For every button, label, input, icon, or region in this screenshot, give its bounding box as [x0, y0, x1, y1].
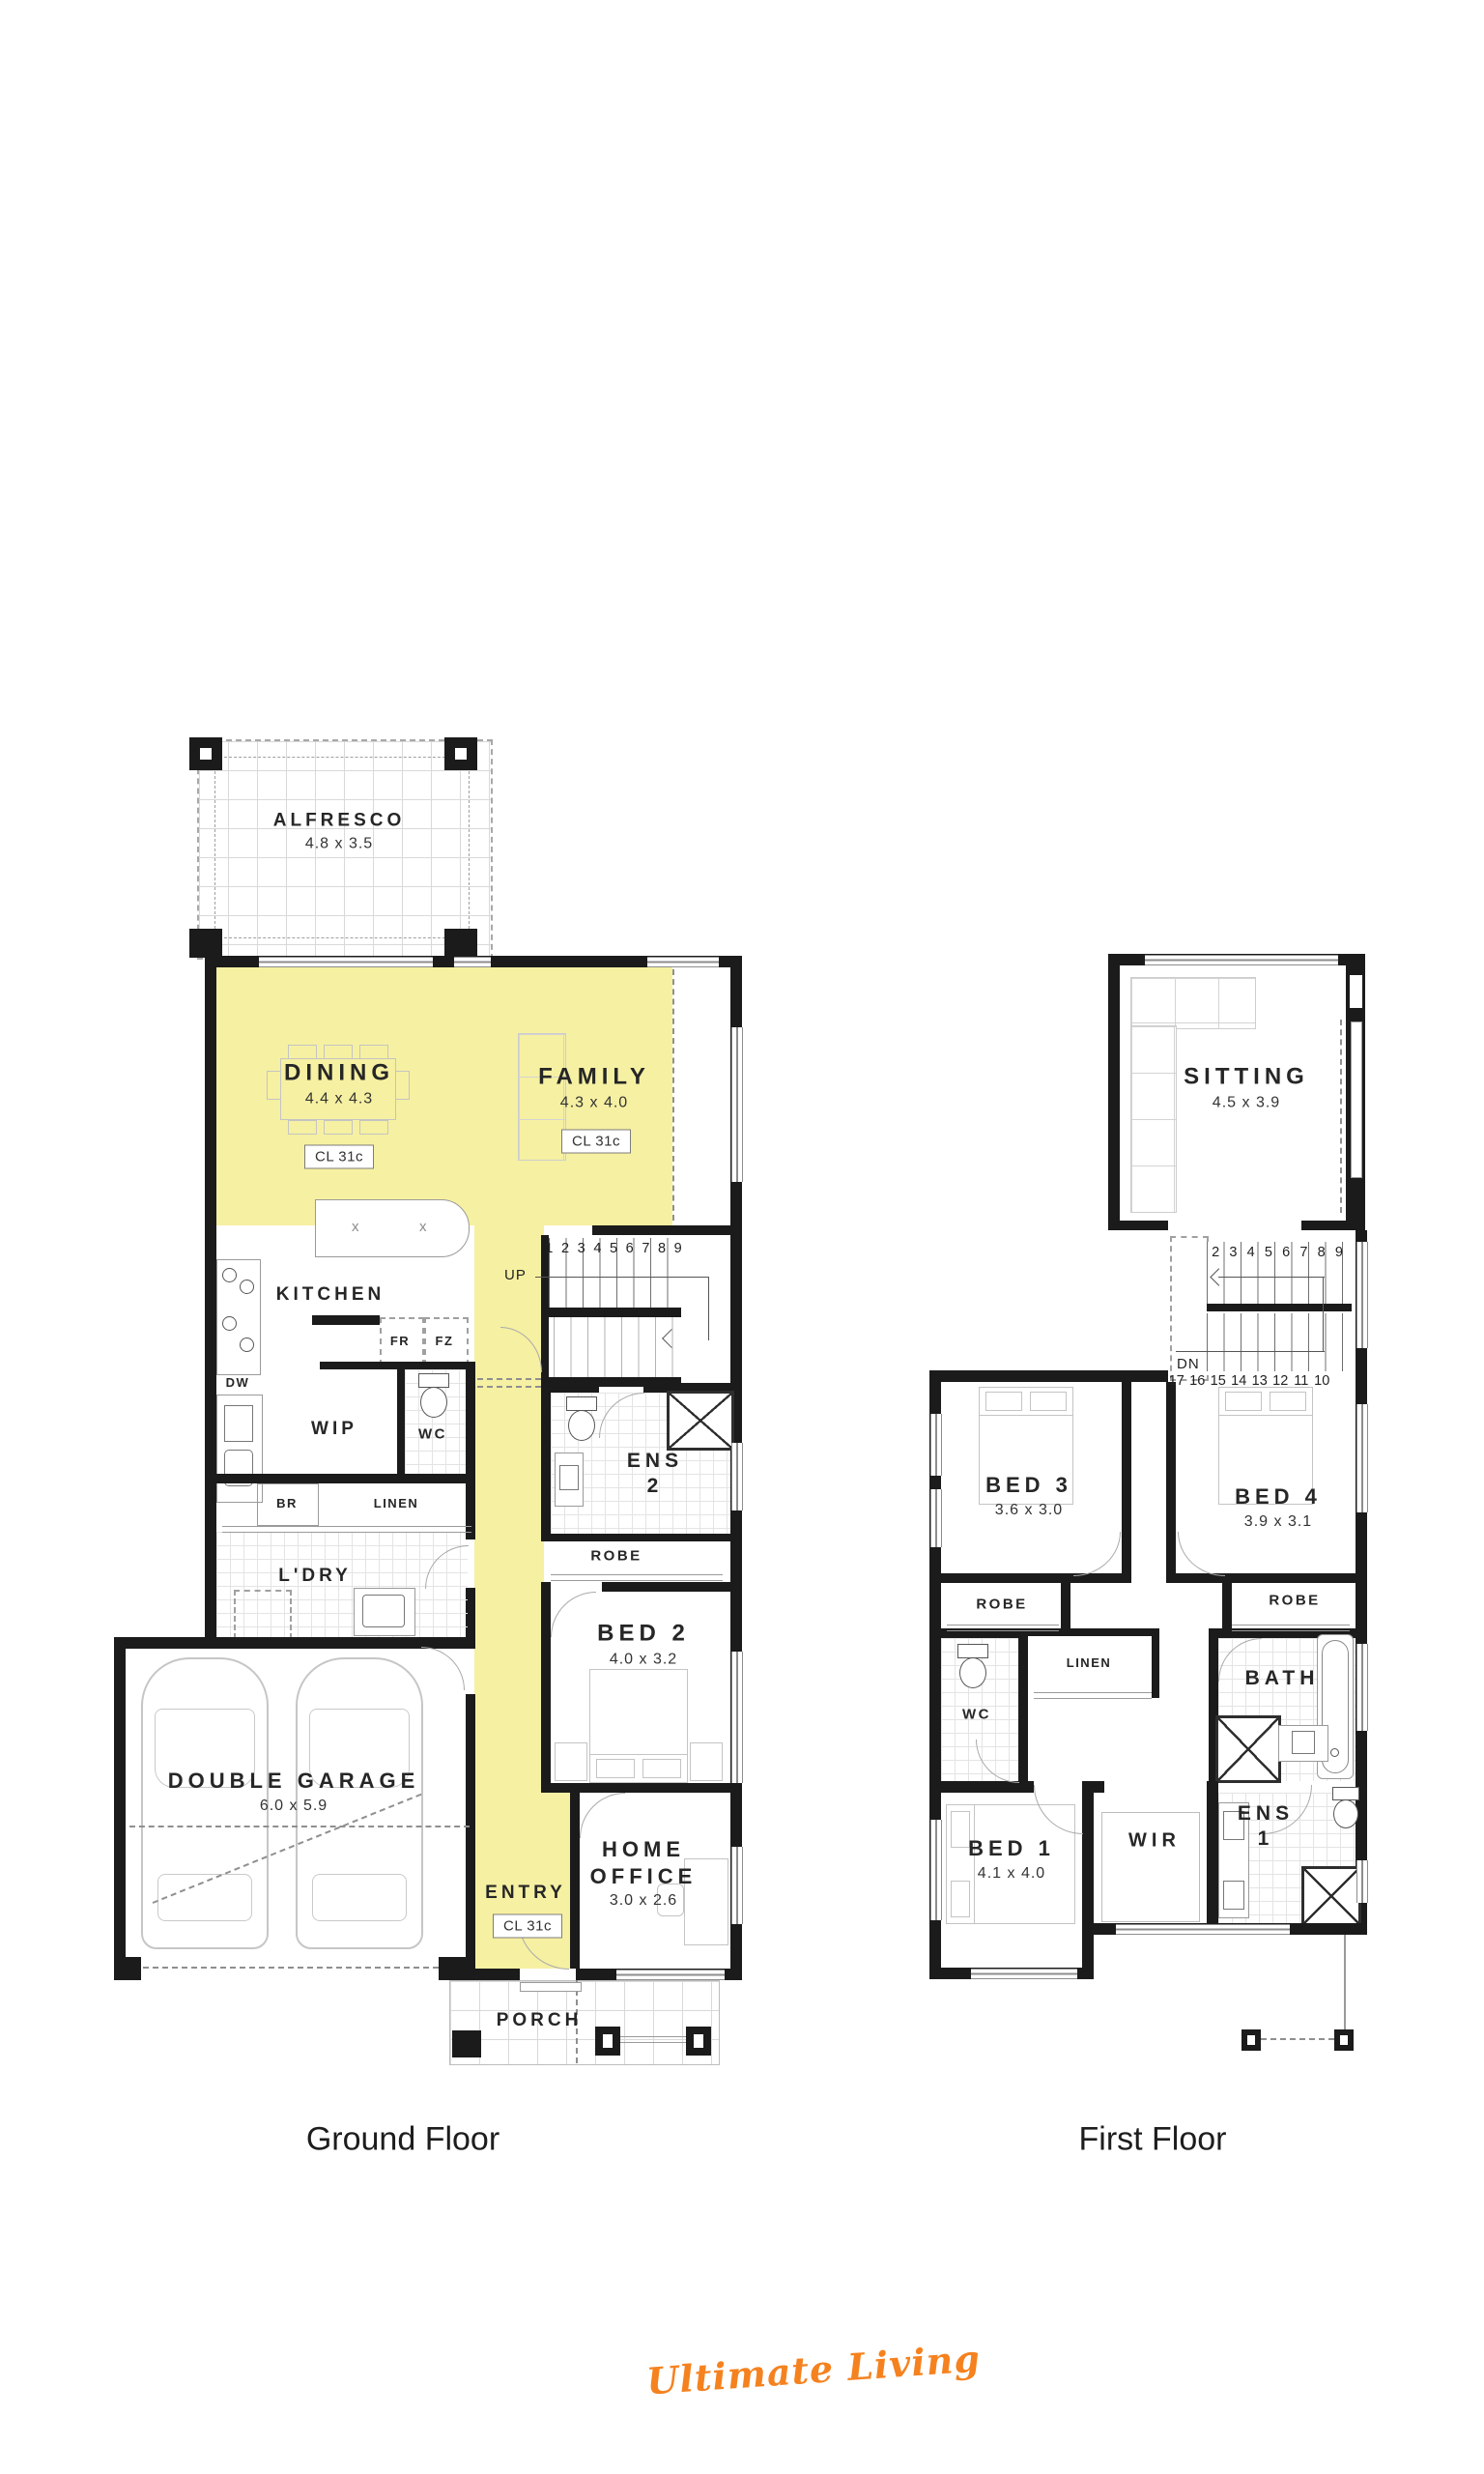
wall-segment	[312, 1315, 380, 1325]
island-sink-mark: x	[419, 1219, 427, 1235]
wall-segment	[1166, 1382, 1176, 1575]
wall-segment	[541, 1308, 681, 1317]
toilet	[957, 1644, 988, 1658]
door-arc	[551, 1592, 596, 1637]
room-label-family: FAMILY 4.3 x 4.0	[538, 1063, 650, 1112]
blanket-line	[1219, 1415, 1312, 1416]
door-arc	[421, 1647, 465, 1690]
room-label-ens1: ENS 1	[1238, 1801, 1294, 1853]
toilet-bowl	[1333, 1799, 1358, 1828]
window	[259, 957, 433, 967]
sitting-sofa	[1130, 977, 1256, 1029]
kitchen-island	[315, 1199, 470, 1257]
wall-segment	[1152, 1628, 1159, 1698]
room-label-wip: WIP	[311, 1418, 357, 1441]
room-label-wc-ff: WC	[962, 1707, 991, 1725]
dining-chair	[288, 1120, 317, 1135]
window	[971, 1969, 1077, 1979]
wall-segment	[216, 1474, 473, 1483]
duct-niche	[1350, 975, 1362, 1008]
blanket-line	[590, 1754, 687, 1755]
stair-treads-lower	[1207, 1313, 1348, 1371]
wall-segment	[320, 1362, 471, 1369]
sliding-door	[551, 1574, 723, 1581]
room-label-bed2: BED 2 4.0 x 3.2	[597, 1620, 690, 1669]
burner-icon	[240, 1280, 254, 1294]
laundry-trough	[354, 1588, 415, 1636]
pillow	[951, 1881, 970, 1917]
balcony-post	[1334, 2029, 1354, 2051]
balcony-post	[1241, 2029, 1261, 2051]
room-label-wir: WIR	[1128, 1829, 1181, 1854]
room-label-ens2: ENS 2	[627, 1449, 683, 1500]
stair-path-line	[535, 1277, 709, 1278]
balcony-dashed-line	[1261, 2038, 1334, 2040]
wall-segment	[114, 1637, 126, 1980]
robe-label: ROBE	[976, 1597, 1027, 1615]
basin	[1292, 1731, 1315, 1754]
wall-segment	[205, 1637, 475, 1649]
wall-segment	[541, 1783, 740, 1793]
wall-segment	[444, 929, 477, 958]
sliding-door	[1232, 1625, 1350, 1631]
pillow	[985, 1392, 1022, 1411]
pillow	[951, 1811, 970, 1848]
vanity	[555, 1453, 584, 1507]
island-sink-mark: x	[352, 1219, 359, 1235]
window	[731, 1027, 743, 1182]
sliding-door	[1034, 1692, 1152, 1699]
porch-area	[449, 1980, 720, 2065]
pillow	[596, 1759, 635, 1778]
room-label-dining: DINING 4.4 x 4.3	[284, 1059, 394, 1108]
window	[930, 1414, 942, 1476]
room-label-kitchen: KITCHEN	[276, 1283, 385, 1307]
sitting-sofa	[1130, 1025, 1177, 1213]
front-step	[520, 1982, 582, 1992]
wall-segment	[1207, 1781, 1218, 1923]
door-arc	[1073, 1532, 1121, 1576]
room-label-porch: PORCH	[497, 2009, 583, 2032]
stair-direction-down: DN	[1177, 1356, 1200, 1372]
garage-door-line	[143, 1967, 439, 1969]
window	[647, 957, 719, 967]
window	[1356, 1644, 1368, 1731]
wall-segment	[541, 1534, 730, 1541]
shower	[667, 1391, 734, 1451]
stair-numbers: 23456789	[1207, 1245, 1348, 1264]
wall-segment	[114, 1637, 216, 1649]
wall-segment	[541, 1582, 551, 1783]
broom-label: BR	[276, 1496, 298, 1511]
basin	[559, 1465, 579, 1490]
bedside-table	[555, 1742, 587, 1781]
first-floor-title: First Floor	[1079, 2121, 1227, 2159]
fridge-label: FR	[390, 1334, 410, 1349]
window	[731, 1443, 743, 1510]
ground-floor-plan: ALFRESCO 4.8 x 3.5 DINING 4.4 x 4.3	[114, 737, 790, 2090]
dining-chair	[324, 1045, 353, 1059]
kitchen-sink	[216, 1395, 263, 1503]
brand-logo: Ultimate Living	[645, 2336, 983, 2402]
dining-chair	[359, 1120, 388, 1135]
ceiling-badge-entry: CL 31c	[493, 1914, 562, 1939]
window	[1356, 1860, 1368, 1903]
shower	[1215, 1715, 1281, 1783]
stair-path-line	[708, 1277, 711, 1340]
dining-chair	[359, 1045, 388, 1059]
trough-bowl	[362, 1595, 405, 1627]
stair-path-line	[1323, 1277, 1326, 1352]
linen-label-ff: LINEN	[1067, 1655, 1112, 1671]
window	[1356, 1404, 1368, 1512]
dishwasher-label: DW	[226, 1375, 250, 1391]
ground-floor-title: Ground Floor	[306, 2121, 499, 2159]
toilet	[1332, 1787, 1359, 1800]
wall-segment	[1108, 954, 1120, 1230]
robe-label: ROBE	[590, 1548, 642, 1567]
bulkhead-dashed-line	[672, 969, 674, 1221]
room-label-bed1: BED 1 4.1 x 4.0	[968, 1835, 1055, 1883]
wall-segment	[1122, 1382, 1131, 1575]
room-label-wc: WC	[418, 1426, 447, 1445]
window	[616, 1970, 725, 1980]
wall-segment	[1222, 1583, 1232, 1628]
first-floor-plan: SITTING 4.5 x 3.9 23456789 DN 1716151413…	[923, 952, 1425, 2092]
wall-segment	[1061, 1583, 1070, 1628]
burner-icon	[240, 1338, 254, 1352]
sliding-door	[222, 1526, 471, 1533]
stair-treads-lower	[554, 1317, 679, 1377]
wall-segment	[1108, 1221, 1168, 1230]
pillow	[1030, 1392, 1067, 1411]
pillow	[1225, 1392, 1262, 1411]
burner-icon	[222, 1316, 237, 1331]
toilet-bowl	[959, 1657, 986, 1688]
dining-chair	[395, 1071, 410, 1100]
pillow	[642, 1759, 681, 1778]
room-label-sitting: SITTING 4.5 x 3.9	[1184, 1063, 1309, 1112]
bedside-table	[690, 1742, 723, 1781]
wall-segment	[592, 1225, 737, 1235]
toilet-bowl	[568, 1410, 595, 1441]
room-label-bed3: BED 3 3.6 x 3.0	[985, 1472, 1072, 1519]
basin	[1223, 1881, 1244, 1910]
burner-icon	[222, 1268, 237, 1282]
wall-segment	[466, 1362, 475, 1539]
door-arc	[1178, 1532, 1225, 1576]
window	[1145, 955, 1338, 965]
wall-segment	[466, 1694, 475, 1980]
ceiling-badge-family: CL 31c	[561, 1130, 631, 1154]
freezer-label: FZ	[436, 1334, 454, 1349]
blanket-line	[980, 1415, 1072, 1416]
dining-chair	[324, 1120, 353, 1135]
cupboard-sliver	[1351, 1021, 1362, 1178]
wall-segment	[114, 1957, 141, 1980]
corridor-highlight-zone	[474, 1225, 544, 1787]
porch-pier	[452, 2030, 481, 2057]
bed	[589, 1669, 688, 1783]
window	[731, 1652, 743, 1783]
wall-segment	[1166, 1573, 1367, 1583]
linen-label: LINEN	[374, 1496, 419, 1511]
cooktop	[216, 1259, 261, 1375]
wall-segment	[397, 1369, 405, 1478]
corridor-break-line	[477, 1378, 541, 1380]
wall-segment	[205, 956, 216, 1645]
shower	[1301, 1866, 1361, 1926]
porch-post	[595, 2027, 620, 2056]
window	[930, 1489, 942, 1547]
wall-segment	[929, 1370, 1168, 1382]
room-label-ldry: L'DRY	[278, 1565, 352, 1588]
robe-label: ROBE	[1269, 1593, 1320, 1611]
ceiling-badge-dining: CL 31c	[304, 1145, 374, 1169]
toilet-bowl	[420, 1387, 447, 1418]
alfresco-post	[444, 737, 477, 770]
pillow	[1270, 1392, 1306, 1411]
porch-post	[686, 2027, 711, 2056]
room-label-bed4: BED 4 3.9 x 3.1	[1235, 1483, 1322, 1531]
room-label-bath: BATH	[1245, 1666, 1320, 1691]
void-dashed-line	[1340, 1020, 1342, 1213]
balcony-line	[1344, 1935, 1346, 2031]
porch-rail	[620, 2036, 686, 2043]
window	[454, 957, 491, 967]
toilet	[566, 1396, 597, 1411]
alfresco-post	[189, 737, 222, 770]
stair-numbers: 1716151413121110	[1166, 1373, 1332, 1393]
washer-space	[234, 1590, 292, 1639]
stair-numbers: 123456789	[541, 1241, 686, 1260]
wall-segment	[1018, 1628, 1028, 1785]
garage-dashed-line	[129, 1826, 470, 1827]
wall-segment	[1207, 1304, 1352, 1311]
window	[1116, 1924, 1290, 1935]
stair-direction-up: UP	[504, 1267, 527, 1283]
toilet	[418, 1373, 449, 1388]
room-label-garage: DOUBLE GARAGE 6.0 x 5.9	[168, 1768, 420, 1815]
window	[930, 1820, 942, 1920]
wall-segment	[941, 1573, 1131, 1583]
corridor-break-line	[477, 1386, 541, 1388]
sink-bowl	[224, 1405, 253, 1442]
dining-chair	[288, 1045, 317, 1059]
floorplan-page: ALFRESCO 4.8 x 3.5 DINING 4.4 x 4.3	[0, 0, 1484, 2474]
vanity	[1278, 1725, 1328, 1762]
dining-chair	[267, 1071, 281, 1100]
room-label-office: HOME OFFICE 3.0 x 2.6	[552, 1836, 735, 1910]
door-arc	[580, 1793, 625, 1838]
wall-segment	[1301, 1221, 1365, 1230]
wall-segment	[541, 1383, 551, 1538]
stair-path-line	[1176, 1351, 1325, 1352]
drain-icon	[1330, 1748, 1339, 1757]
stair-path-line	[1218, 1277, 1325, 1278]
wall-segment	[189, 929, 222, 958]
sliding-door	[947, 1625, 1059, 1631]
window	[1356, 1242, 1368, 1348]
wall-segment	[602, 1582, 740, 1592]
room-label-alfresco: ALFRESCO 4.8 x 3.5	[273, 810, 406, 853]
